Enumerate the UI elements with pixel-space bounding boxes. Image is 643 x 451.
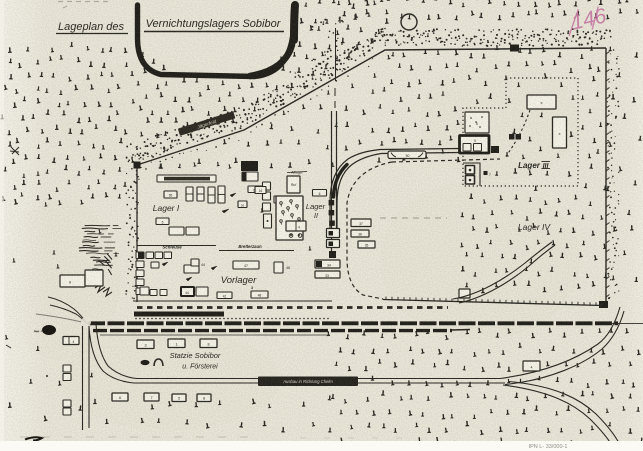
svg-text:IPN L- 33/000-1: IPN L- 33/000-1: [529, 444, 568, 450]
